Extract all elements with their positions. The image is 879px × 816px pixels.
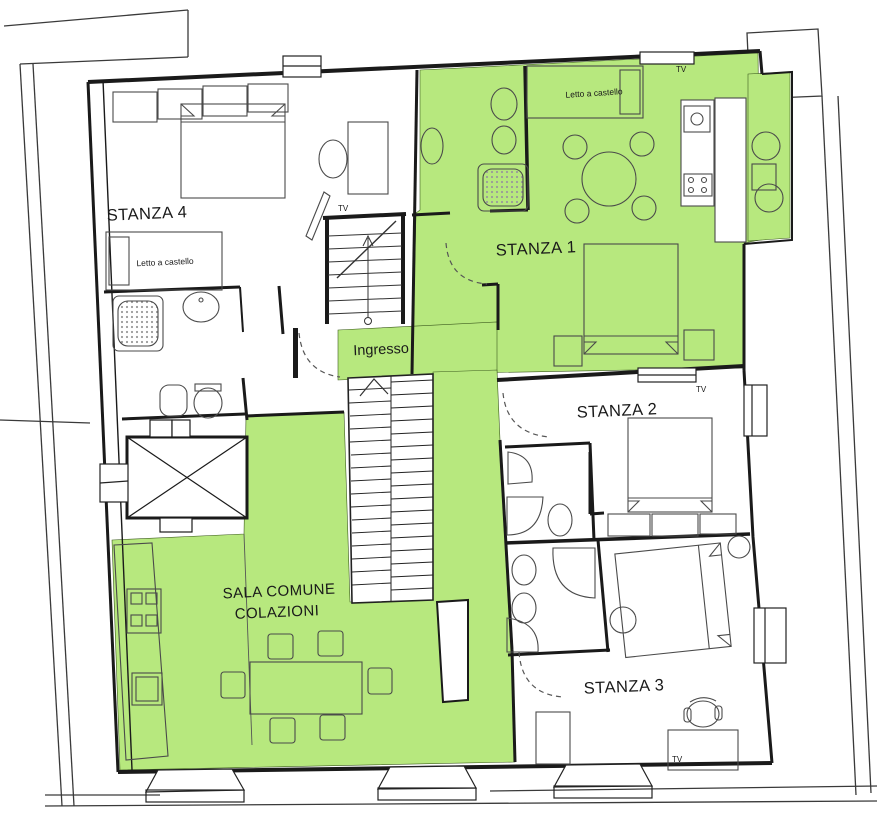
window-stanza2-right <box>744 385 767 436</box>
label-stanza4: STANZA 4 <box>106 203 187 225</box>
shower-stanza4 <box>113 296 163 351</box>
label-tv-stanza2: TV <box>696 385 707 394</box>
floor-plan-svg: STANZA 4 STANZA 1 STANZA 2 STANZA 3 SALA… <box>0 0 879 816</box>
window-bottom-3 <box>554 764 652 798</box>
floor-plan-page: STANZA 4 STANZA 1 STANZA 2 STANZA 3 SALA… <box>0 0 879 816</box>
tv-cabinet-stanza1 <box>640 52 694 64</box>
label-tv-stanza1: TV <box>676 65 687 74</box>
label-tv-stanza3: TV <box>672 755 683 764</box>
window-stanza3-right <box>754 608 786 663</box>
label-stanza3: STANZA 3 <box>583 676 664 698</box>
wall-stub-below-stair <box>437 600 468 702</box>
label-stanza1: STANZA 1 <box>495 238 576 260</box>
window-bottom-2 <box>378 766 476 800</box>
window-bottom-1 <box>146 769 244 802</box>
skylight-shaft <box>127 420 247 532</box>
label-stanza2: STANZA 2 <box>576 400 657 422</box>
label-ingresso: Ingresso <box>353 341 409 359</box>
area-balcony <box>748 72 790 241</box>
label-tv-stanza4: TV <box>338 204 349 213</box>
